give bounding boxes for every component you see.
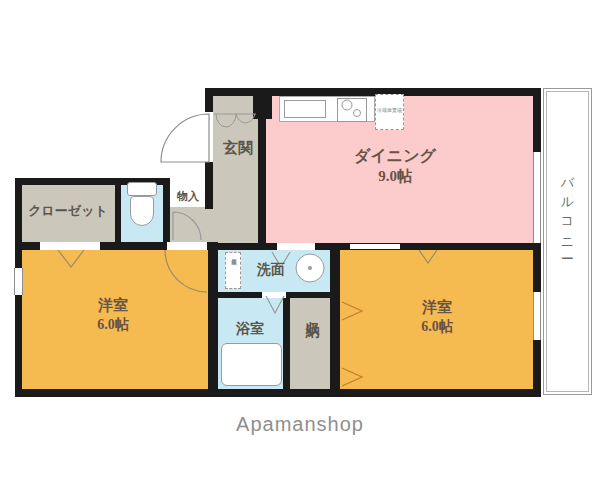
wall [283,298,290,389]
dining-room-label: ダイニング 9.0帖 [335,146,455,186]
wall [15,389,541,397]
dining-balcony-window [533,152,541,243]
wall [115,178,121,248]
wall [208,250,218,389]
entrance-label: 玄関 [213,139,263,159]
wall [205,96,213,112]
washroom-door-opening [277,243,315,250]
wall [533,96,541,152]
refrigerator-space-label: 冷蔵庫置場 [376,107,403,113]
bedroom-left-door-opening [167,242,207,250]
wall [258,119,266,243]
toilet-tank [127,182,157,196]
bathroom-door-opening [262,292,286,298]
washroom-label: 洗面 [246,261,296,279]
dining-room-size: 9.0帖 [335,167,455,187]
dining-room-name: ダイニング [335,146,455,167]
bedroom-right-name: 洋室 [387,298,487,318]
bedroom-left-size: 6.0帖 [63,316,163,334]
closet-label: クローゼット [21,203,115,220]
entrance-door-opening [205,112,213,162]
closet-door-opening [40,242,100,250]
kitchen-sink [284,100,326,118]
bathroom-label: 浴室 [225,320,275,338]
bedroom-left-window [14,268,23,295]
refrigerator-space-box: 冷蔵庫置場 [375,94,404,130]
bedroom-left-name: 洋室 [63,296,163,316]
bedroom-right-label: 洋室 6.0帖 [387,298,487,336]
storage-label: 収納 [303,310,321,316]
wall [205,88,273,96]
bedroom-right-size: 6.0帖 [387,318,487,336]
floorplan-canvas: 冷蔵庫置場 洗濯機置場 ダイニング 9.0帖 洋室 6.0帖 洋室 6.0帖 ク… [0,0,600,480]
entrance-door-arc [161,114,209,162]
balcony-label: バルコニー [558,168,575,257]
hallway-floor [166,207,213,243]
wall [205,162,213,183]
bedroom-right-door-opening [350,244,400,249]
wall [533,243,541,292]
small-storage-label: 物入 [168,189,208,203]
bedroom-right-balcony-window [533,292,541,340]
bedroom-left-label: 洋室 6.0帖 [63,296,163,334]
washing-machine-space-box: 洗濯機置場 [225,252,241,289]
stove [337,98,367,122]
brand-logo-text: Apamanshop [0,413,600,436]
wall [163,178,170,242]
wall [330,243,340,389]
wall [253,96,272,119]
bathtub [221,343,282,386]
toilet-bowl [130,196,154,226]
